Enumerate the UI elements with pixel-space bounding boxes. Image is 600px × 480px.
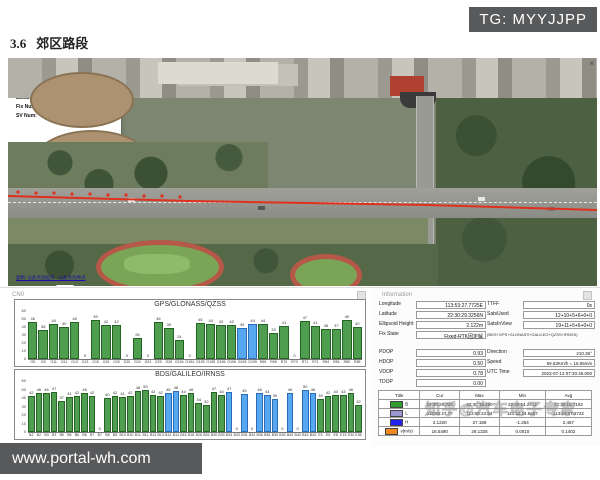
x-axis-label: G194	[185, 360, 194, 365]
x-axis-label: B7	[89, 433, 96, 438]
y-axis-tick: 50	[17, 387, 26, 392]
series-color-chip	[385, 428, 398, 435]
x-axis-label: R71	[300, 360, 309, 365]
bar-value-label: 48	[174, 386, 178, 390]
table-cell: 16.5490	[420, 427, 460, 436]
chart-title: GPS/GLONASS/QZSS	[15, 300, 365, 310]
x-axis-label: B36	[256, 433, 263, 438]
field-label: SatsUsed	[487, 312, 521, 318]
x-axis-label: G195	[206, 360, 215, 365]
cn0-bar[interactable]	[206, 324, 215, 359]
bar-value-label: 42	[158, 391, 162, 395]
bar-value-label: 41	[120, 392, 124, 396]
x-axis-label: B33	[233, 433, 240, 438]
cn0-bar[interactable]	[317, 399, 324, 432]
cn0-bar[interactable]	[264, 395, 271, 432]
bar-value-label: 37	[60, 396, 64, 400]
y-axis-tick: 20	[17, 412, 26, 417]
field-value: 59.63Km/h = 16.55m/s	[523, 359, 595, 367]
cn0-bar[interactable]	[340, 395, 347, 432]
x-axis-label: B30	[218, 433, 225, 438]
y-axis-tick: 20	[17, 340, 26, 345]
x-axis-label: B6	[74, 433, 81, 438]
bar-value-label: 42	[104, 320, 108, 324]
x-axis-label: E3	[317, 433, 324, 438]
bar-value-label: 46	[257, 388, 261, 392]
y-axis-tick: 40	[17, 395, 26, 400]
cn0-bar[interactable]	[325, 396, 332, 432]
bar-value-label: 46	[156, 317, 160, 321]
x-axis-label: R85	[353, 360, 362, 365]
x-axis-label: E36	[355, 433, 362, 438]
x-axis-label: E8	[332, 433, 339, 438]
cn0-bar[interactable]	[272, 399, 279, 432]
x-axis-label: R84	[332, 360, 341, 365]
cn0-bar[interactable]	[216, 325, 225, 359]
x-axis-label: B2	[28, 433, 35, 438]
x-axis-label: B8	[112, 433, 119, 438]
bar-value-label: 41	[313, 321, 317, 325]
bar-value-label: 0	[99, 427, 101, 431]
field-value: Fixed-RTK固定解	[416, 331, 486, 339]
cn0-bar[interactable]	[157, 396, 164, 432]
x-axis-label: G29	[164, 360, 173, 365]
x-axis-label: G199	[237, 360, 246, 365]
cn0-bar[interactable]	[135, 391, 142, 432]
cn0-bar[interactable]	[164, 328, 173, 359]
satellite-map[interactable]: × BASIC UTC Time:072046.000Longitude:113…	[8, 58, 597, 286]
bar-value-label: 48	[136, 386, 140, 390]
cn0-bar[interactable]	[91, 320, 100, 359]
x-axis-label: G5	[38, 360, 47, 365]
y-axis-tick: 10	[17, 348, 26, 353]
x-axis-label: B14	[173, 433, 180, 438]
x-axis-label: G15	[101, 360, 110, 365]
bar-value-label: 38	[324, 324, 328, 328]
cn0-bar[interactable]	[321, 329, 330, 359]
field-label: SatsInView	[487, 322, 521, 328]
cn0-bar[interactable]	[332, 329, 341, 359]
x-axis-label: G24	[133, 360, 142, 365]
y-axis-tick: 30	[17, 404, 26, 409]
field-value: 210.36°	[523, 349, 595, 357]
table-cell: 0.0010	[499, 427, 545, 436]
bar-value-label: 24	[177, 335, 181, 339]
chart-bds-galileo-irnss: BDS/GALILEO/IRNSS01020304050604246464737…	[14, 369, 366, 440]
field-value: 2.122m	[416, 321, 486, 329]
cn0-bar[interactable]	[237, 328, 246, 359]
bar-value-label: 0	[293, 354, 295, 358]
cn0-bar[interactable]	[226, 392, 233, 432]
bar-value-label: 46	[189, 388, 193, 392]
field-label: UTC Time	[487, 370, 521, 376]
bar-value-label: 42	[113, 391, 117, 395]
table-row: v(m/s)16.549029.13250.00100.1402	[379, 427, 592, 436]
bar-value-label: 49	[345, 315, 349, 319]
bar-value-label: 42	[229, 320, 233, 324]
table-header: Title	[379, 391, 420, 400]
bar-value-label: 40	[355, 322, 359, 326]
x-axis-label: G20	[122, 360, 131, 365]
x-axis-label: B33	[226, 433, 233, 438]
field-label: Direction	[487, 350, 521, 356]
bar-value-label: 0	[84, 354, 86, 358]
information-panel-title: Information	[382, 292, 412, 298]
cn0-bar[interactable]	[269, 333, 278, 359]
bar-value-label: 0	[251, 427, 253, 431]
bar-value-label: 46	[82, 388, 86, 392]
x-axis-label: G13	[80, 360, 89, 365]
y-axis-tick: 50	[17, 316, 26, 321]
bar-value-label: 0	[189, 354, 191, 358]
x-axis-label: B39	[279, 433, 286, 438]
field-label: VDOP	[379, 370, 409, 376]
x-axis-label: G24	[143, 360, 152, 365]
bar-value-label: 41	[282, 321, 286, 325]
cn0-bar[interactable]	[165, 393, 172, 432]
field-value: 0.50	[416, 359, 486, 367]
bar-value-label: 39	[167, 323, 171, 327]
x-axis-label: G29	[154, 360, 163, 365]
bar-value-label: 47	[212, 387, 216, 391]
y-axis-tick: 60	[17, 378, 26, 383]
cn0-bar[interactable]	[256, 393, 263, 432]
cn0-bar[interactable]	[188, 393, 195, 432]
x-axis-label: B11	[142, 433, 149, 438]
y-axis-tick: 0	[17, 429, 26, 434]
x-axis-label: R70	[290, 360, 299, 365]
cn0-bar[interactable]	[112, 396, 119, 432]
cn0-bar[interactable]	[227, 325, 236, 359]
field-value: 113:53:27.7725E	[416, 301, 486, 309]
bar-value-label: 36	[41, 325, 45, 329]
bar-value-label: 40	[62, 322, 66, 326]
cn0-bar[interactable]	[218, 395, 225, 432]
x-axis-label: G195	[196, 360, 205, 365]
tg-watermark-badge: TG: MYYJJPP	[469, 7, 597, 32]
x-axis-label: E34	[348, 433, 355, 438]
bar-value-label: 42	[128, 391, 132, 395]
bar-value-label: 0	[236, 427, 238, 431]
cn0-bar[interactable]	[101, 325, 110, 359]
bar-value-label: 47	[52, 387, 56, 391]
bar-value-label: 50	[143, 385, 147, 389]
cn0-bar[interactable]	[310, 393, 317, 432]
y-axis-tick: 0	[17, 356, 26, 361]
cn0-bar[interactable]	[58, 401, 65, 432]
bar-value-label: 0	[297, 427, 299, 431]
bar-value-label: 0	[281, 427, 283, 431]
cn0-bar[interactable]	[112, 325, 121, 359]
cn0-bar[interactable]	[203, 405, 210, 432]
x-axis-label: G196	[216, 360, 225, 365]
cn0-bar[interactable]	[28, 396, 35, 432]
y-axis-tick: 10	[17, 421, 26, 426]
field-label: TDOP	[379, 380, 409, 386]
x-axis-label: G194	[175, 360, 184, 365]
field-value: 2023-07-13 07:20:46.000	[523, 369, 595, 377]
bar-value-label: 43	[333, 390, 337, 394]
cn0-bar[interactable]	[258, 324, 267, 359]
x-axis-label: B5	[58, 433, 65, 438]
cn0-bar[interactable]	[104, 398, 111, 432]
series-color-chip	[390, 419, 403, 426]
section-title: 郊区路段	[36, 36, 88, 51]
x-axis-label: G20	[112, 360, 121, 365]
bar-value-label: 32	[204, 400, 208, 404]
field-label: Latitude	[379, 312, 415, 318]
field-value: 12+10+5+6+0+0	[523, 311, 595, 319]
bar-value-label: 44	[265, 390, 269, 394]
field-value: 0.00	[416, 379, 486, 387]
field-label: PDOP	[379, 350, 409, 356]
x-axis-label: G199	[248, 360, 257, 365]
bar-value-label: 0	[126, 354, 128, 358]
pin-icon[interactable]	[583, 291, 592, 300]
field-label: Longitude	[379, 302, 415, 308]
cn0-bar[interactable]	[74, 396, 81, 432]
cn0-bar[interactable]	[51, 392, 58, 432]
x-axis-label: B8	[104, 433, 111, 438]
cn0-bar[interactable]	[287, 393, 294, 432]
x-axis-label: B26	[195, 433, 202, 438]
cn0-bar[interactable]	[302, 390, 309, 433]
x-axis-label: B34	[241, 433, 248, 438]
table-cell: 29.1325	[460, 427, 500, 436]
x-axis-label: B43	[302, 433, 309, 438]
field-label: Fix State	[379, 332, 415, 338]
cn0-bar[interactable]	[248, 324, 257, 359]
cn0-bar[interactable]	[196, 323, 205, 359]
cn0-bar[interactable]	[49, 324, 58, 359]
cn0-bar[interactable]	[59, 327, 68, 359]
cn0-bar[interactable]	[154, 322, 163, 359]
field-value: 22:30:29.3256N	[416, 311, 486, 319]
bar-value-label: 46	[288, 388, 292, 392]
bar-value-label: 44	[51, 319, 55, 323]
cn0-bar[interactable]	[133, 338, 142, 359]
x-axis-label: B39	[272, 433, 279, 438]
field-label: Ellipsoid Height	[379, 322, 415, 328]
cn0-bar[interactable]	[28, 322, 37, 359]
x-axis-label: B16	[180, 433, 187, 438]
x-axis-label: B14	[165, 433, 172, 438]
x-axis-label: B11	[135, 433, 142, 438]
x-axis-label: B16	[188, 433, 195, 438]
chart-title: BDS/GALILEO/IRNSS	[15, 370, 365, 380]
x-axis-label: R69	[258, 360, 267, 365]
cn0-bar[interactable]	[311, 326, 320, 359]
bar-value-label: 46	[44, 388, 48, 392]
y-axis-tick: 60	[17, 308, 26, 313]
cn0-bar[interactable]	[43, 393, 50, 432]
x-axis-label: B30	[211, 433, 218, 438]
cn0-bar[interactable]	[173, 391, 180, 432]
cn0-bar[interactable]	[150, 395, 157, 432]
cn0-bar[interactable]	[355, 405, 362, 432]
bar-value-label: 46	[349, 388, 353, 392]
cn0-bar[interactable]	[279, 326, 288, 359]
x-axis-label: B13	[150, 433, 157, 438]
field-label: TTFF	[487, 302, 521, 308]
bar-value-label: 42	[29, 391, 33, 395]
bar-value-label: 42	[326, 391, 330, 395]
x-axis-label: B36	[264, 433, 271, 438]
cn0-bar[interactable]	[89, 396, 96, 432]
x-axis-label: B6	[81, 433, 88, 438]
bar-value-label: 42	[219, 320, 223, 324]
x-axis-label: B3	[43, 433, 50, 438]
x-axis-label: B10	[127, 433, 134, 438]
bar-value-label: 40	[105, 393, 109, 397]
section-number: 3.6	[10, 36, 26, 51]
field-label: HDOP	[379, 360, 409, 366]
x-axis-label: B40	[294, 433, 301, 438]
bar-value-label: 39	[318, 394, 322, 398]
bar-value-label: 47	[227, 387, 231, 391]
cn0-bar[interactable]	[241, 394, 248, 432]
bar-value-label: 45	[198, 318, 202, 322]
bar-value-label: 47	[303, 316, 307, 320]
bar-value-label: 44	[181, 390, 185, 394]
x-axis-label: G5	[28, 360, 37, 365]
bar-value-label: 49	[93, 315, 97, 319]
bar-value-label: 43	[341, 390, 345, 394]
cn0-bar[interactable]	[38, 330, 47, 359]
bar-value-label: 44	[250, 319, 254, 323]
field-value: 0.78	[416, 369, 486, 377]
series-color-chip	[390, 401, 403, 408]
cn0-bar[interactable]	[142, 390, 149, 433]
x-axis-label: B10	[119, 433, 126, 438]
y-axis-tick: 30	[17, 332, 26, 337]
bar-value-label: 42	[114, 320, 118, 324]
bar-value-label: 41	[67, 392, 71, 396]
bar-value-label: 43	[151, 390, 155, 394]
overlay-watermark: 知乎@汽车电子专家	[425, 398, 578, 419]
x-axis-label: B40	[287, 433, 294, 438]
x-axis-label: R69	[269, 360, 278, 365]
bar-value-label: 32	[356, 400, 360, 404]
x-axis-label: E5	[325, 433, 332, 438]
x-axis-label: G11	[59, 360, 68, 365]
bar-value-label: 46	[37, 388, 41, 392]
cn0-bar[interactable]	[353, 327, 362, 359]
x-axis-label: G13	[70, 360, 79, 365]
x-axis-label: B13	[157, 433, 164, 438]
bar-value-label: 42	[75, 391, 79, 395]
bar-value-label: 39	[273, 394, 277, 398]
table-cell: 0.1402	[545, 427, 591, 436]
cn0-bar[interactable]	[66, 397, 73, 432]
bar-value-label: 46	[311, 388, 315, 392]
x-axis-label: R85	[342, 360, 351, 365]
bar-value-label: 33	[271, 328, 275, 332]
x-axis-label: G11	[49, 360, 58, 365]
bar-value-label: 42	[90, 391, 94, 395]
bar-value-label: 50	[303, 385, 307, 389]
x-axis-label: R71	[311, 360, 320, 365]
x-axis-label: G196	[227, 360, 236, 365]
bar-value-label: 39	[240, 323, 244, 327]
x-axis-label: B26	[203, 433, 210, 438]
bar-value-label: 26	[135, 333, 139, 337]
cn0-bar[interactable]	[180, 395, 187, 432]
bar-value-label: 37	[334, 324, 338, 328]
bar-value-label: 44	[219, 390, 223, 394]
bar-value-label: 0	[147, 354, 149, 358]
cn0-bar[interactable]	[70, 322, 79, 359]
field-value: 19+11+5+6+0+0	[523, 321, 595, 329]
bar-value-label: 45	[242, 389, 246, 393]
series-color-chip	[390, 410, 403, 417]
cn0-bar[interactable]	[81, 393, 88, 432]
cn0-bar[interactable]	[300, 321, 309, 359]
x-axis-label: B34	[249, 433, 256, 438]
field-value: 0.93	[416, 349, 486, 357]
cn0-bar[interactable]	[332, 395, 339, 432]
bar-value-label: 44	[261, 319, 265, 323]
x-axis-label: B43	[310, 433, 317, 438]
gnss-route-trace	[8, 58, 597, 286]
y-axis-tick: 40	[17, 324, 26, 329]
constellation-note: (BDS+GPS+GLONASS+GALILEO+QZSS+IRNSS)	[487, 332, 578, 337]
field-label: Speed	[487, 360, 521, 366]
cn0-bar[interactable]	[195, 403, 202, 432]
cn0-bar[interactable]	[348, 393, 355, 432]
section-heading: 3.6郊区路段	[10, 33, 88, 52]
x-axis-label: B5	[66, 433, 73, 438]
bar-value-label: 46	[72, 317, 76, 321]
bar-value-label: 46	[166, 388, 170, 392]
cn0-bar[interactable]	[127, 396, 134, 432]
cn0-bar[interactable]	[175, 340, 184, 359]
cn0-bar[interactable]	[342, 320, 351, 359]
x-axis-label: R84	[321, 360, 330, 365]
x-axis-label: G15	[91, 360, 100, 365]
x-axis-label: B2	[36, 433, 43, 438]
cn0-panel-title: CN0	[12, 292, 24, 298]
site-watermark: www.portal-wh.com	[0, 443, 202, 474]
x-axis-label: E15	[340, 433, 347, 438]
x-axis-label: R70	[279, 360, 288, 365]
field-value: 0s	[523, 301, 595, 309]
chart-gps-glonass-qzss: GPS/GLONASS/QZSS010203040506046364440460…	[14, 299, 366, 367]
cn0-bar[interactable]	[211, 392, 218, 432]
x-axis-label: B3	[51, 433, 58, 438]
x-axis-label: B7	[96, 433, 103, 438]
bar-value-label: 44	[208, 319, 212, 323]
bar-value-label: 46	[31, 317, 35, 321]
cn0-bar[interactable]	[36, 393, 43, 432]
bar-value-label: 34	[196, 398, 200, 402]
cn0-bar[interactable]	[119, 397, 126, 432]
